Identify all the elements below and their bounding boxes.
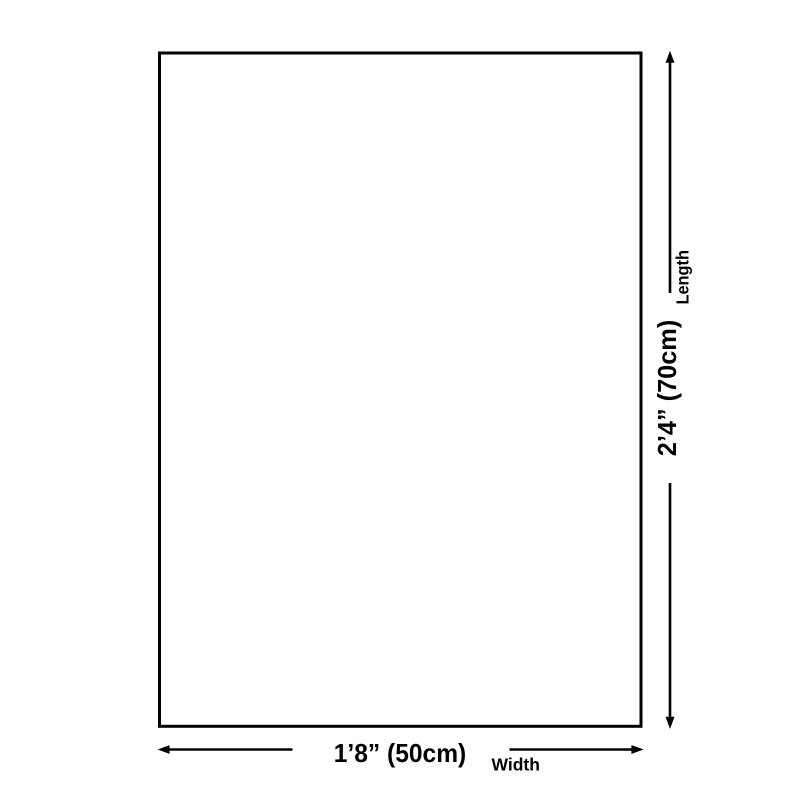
svg-text:2’4” (70cm): 2’4” (70cm) bbox=[652, 320, 682, 457]
svg-text:Width: Width bbox=[491, 755, 539, 775]
svg-text:Length: Length bbox=[673, 250, 693, 305]
svg-text:1’8” (50cm): 1’8” (50cm) bbox=[334, 738, 467, 768]
